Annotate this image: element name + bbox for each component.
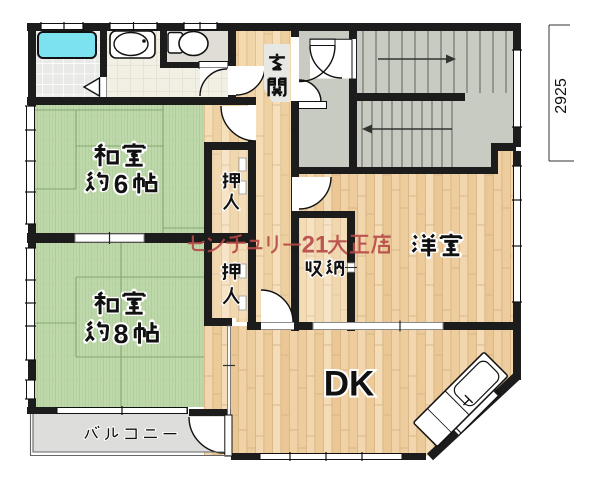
svg-text:6: 6 (114, 169, 128, 199)
svg-text:DK: DK (324, 365, 375, 404)
svg-text:8: 8 (113, 319, 128, 349)
svg-text:21: 21 (302, 232, 329, 259)
svg-text:2925: 2925 (553, 78, 570, 114)
